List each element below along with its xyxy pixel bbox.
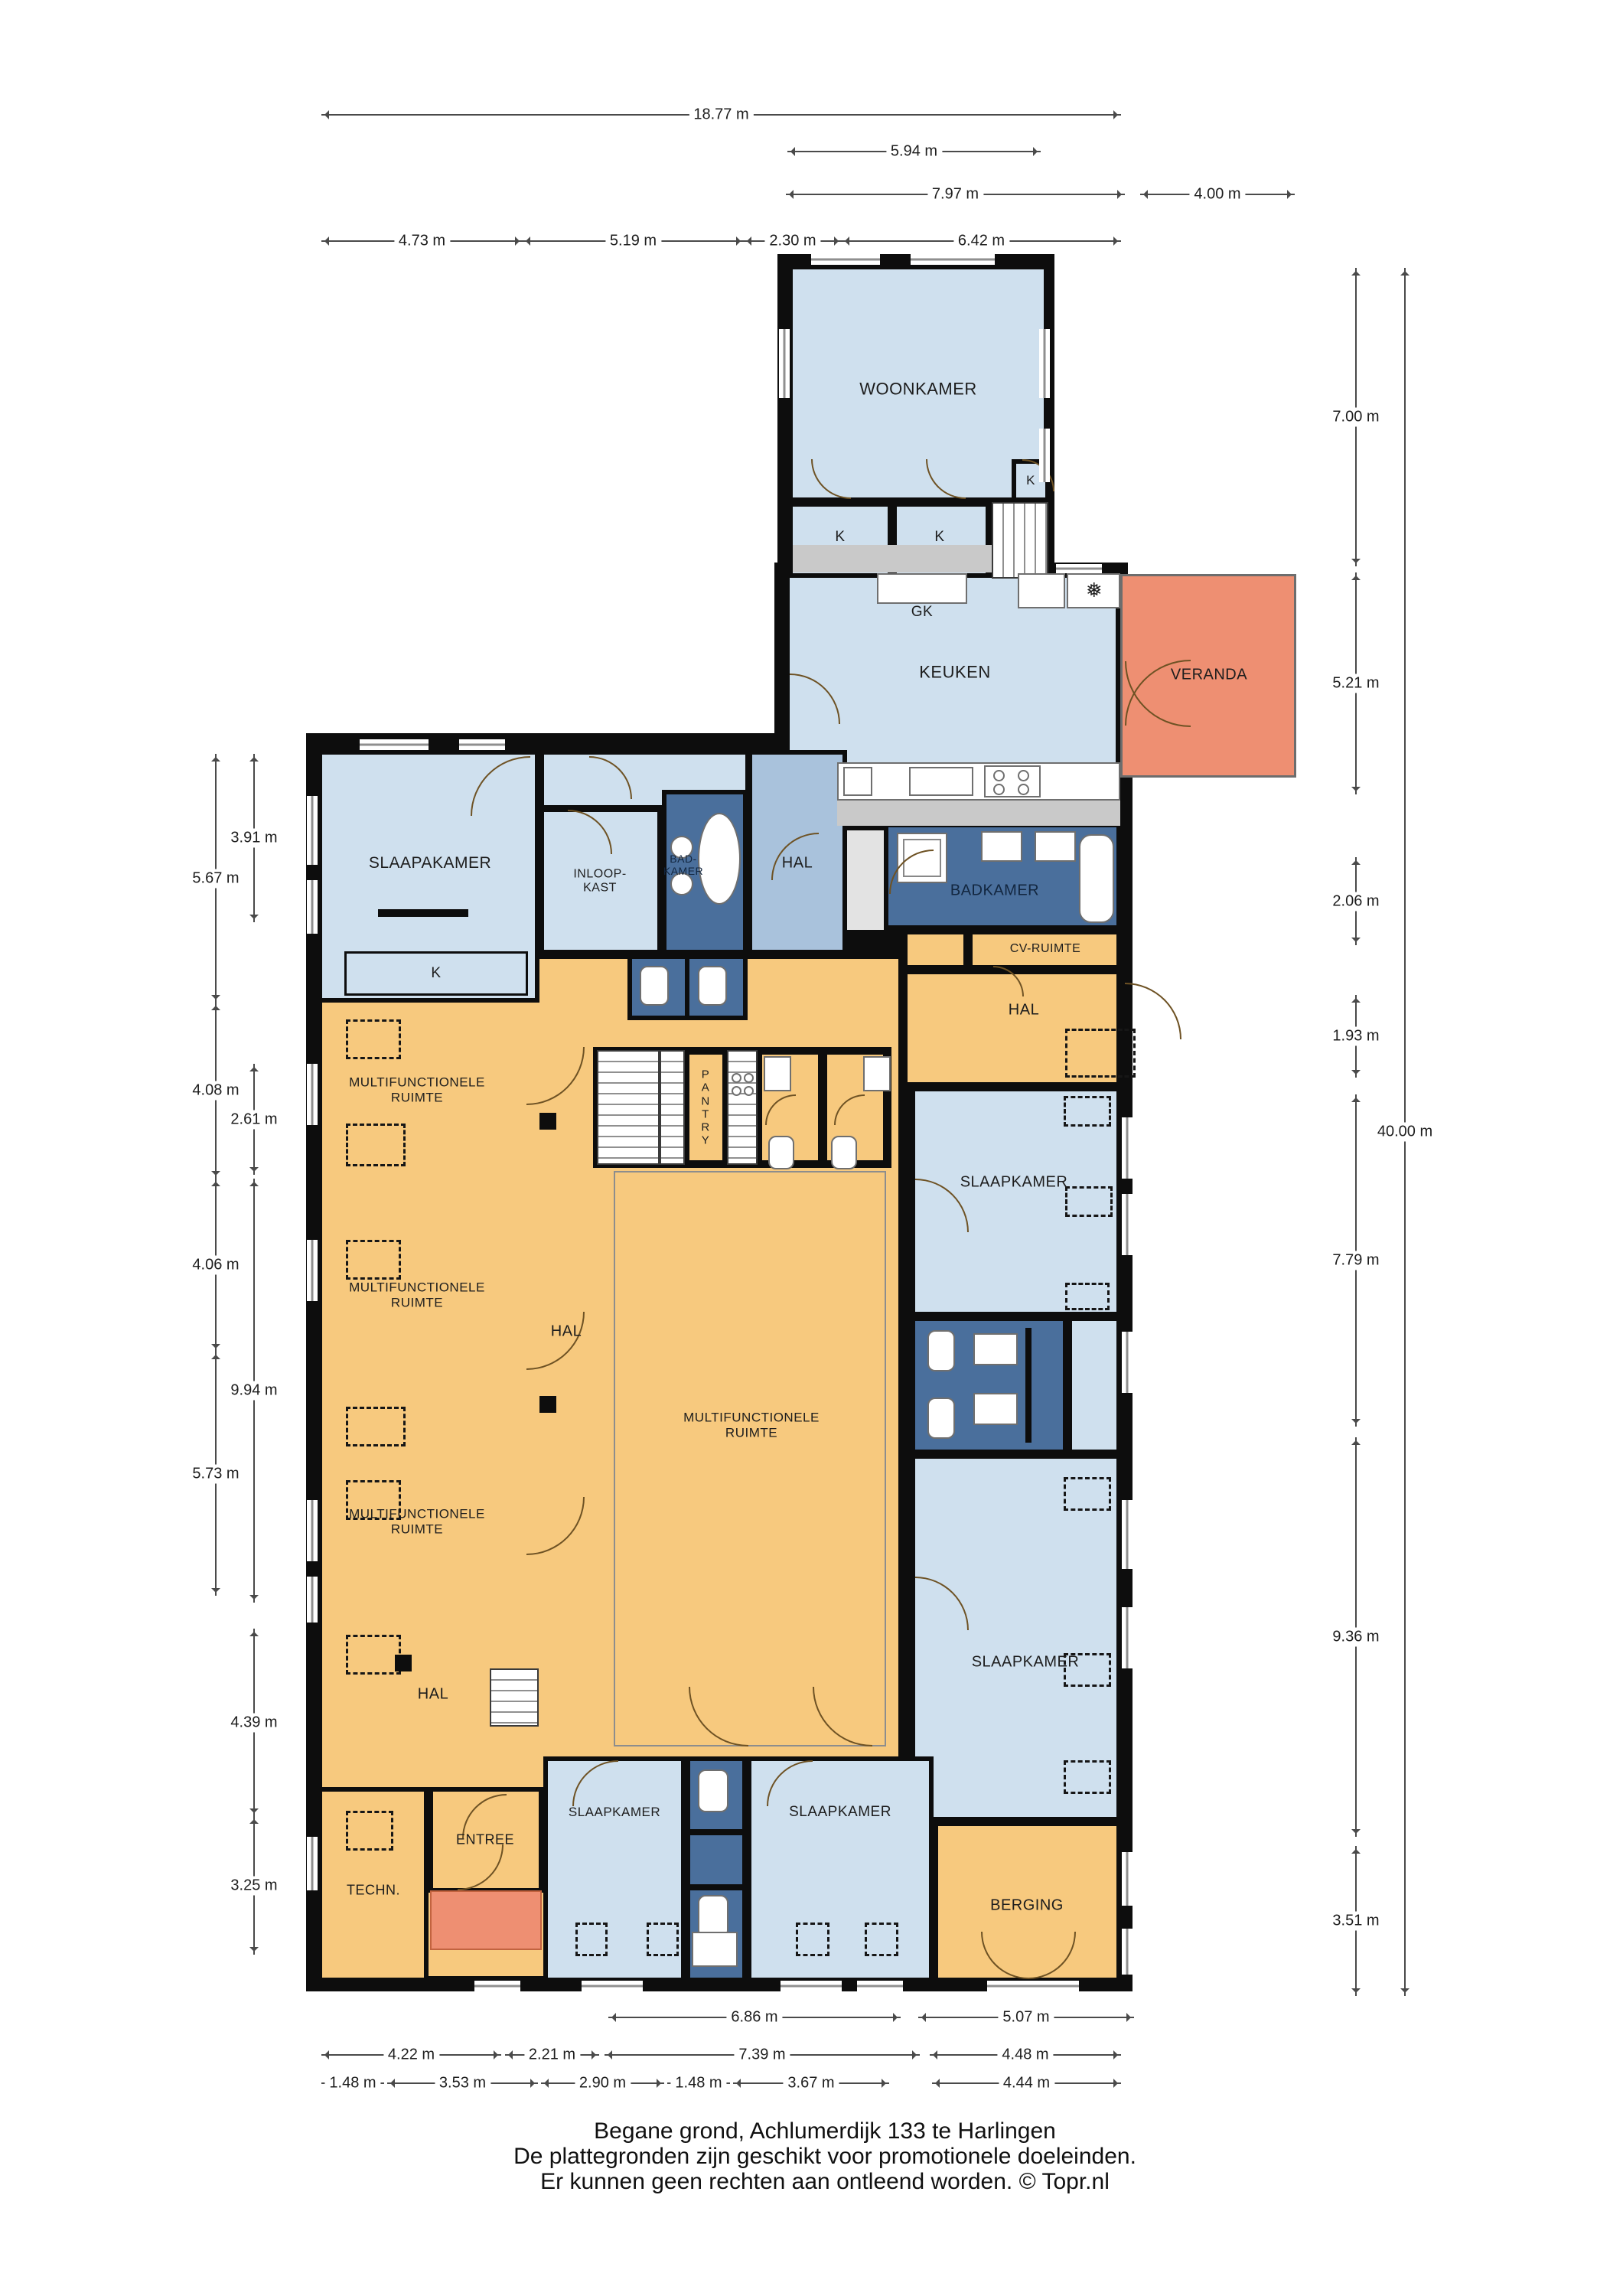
box-multi2-a (346, 1240, 401, 1280)
label-woonkamer: WOONKAMER (859, 379, 977, 398)
win-main-top-1 (360, 739, 429, 750)
bed-ro-1 (1064, 1096, 1111, 1127)
dim-bottom-1-48b-label: 1.48 m (670, 2074, 726, 2093)
label-multi-1: MULTIFUNCTIONELE RUIMTE (349, 1075, 485, 1104)
kitchen-sink (909, 767, 973, 796)
stairs-bottom (490, 1668, 539, 1727)
sink-wc1 (764, 1056, 791, 1091)
wc-col-partition-2 (687, 1884, 745, 1890)
dim-bottom-3-67-label: 3.67 m (783, 2074, 839, 2093)
dim-right-7-79: 7.79 m (1345, 1094, 1367, 1427)
wc-col-partition-1 (687, 1829, 745, 1835)
dim-right-40-00-label: 40.00 m (1373, 1123, 1437, 1142)
label-hal-links: HAL (551, 1323, 582, 1341)
dim-top-18-77: 18.77 m (321, 104, 1121, 126)
win-bottom-1 (474, 1981, 520, 1991)
win-wk-top-1 (811, 254, 880, 265)
dim-left-3-25: 3.25 m (243, 1816, 265, 1955)
dim-right-7-79-label: 7.79 m (1328, 1251, 1383, 1270)
win-berging-e-2 (1122, 1929, 1133, 1975)
footer-title: Begane grond, Achlumerdijk 133 te Harlin… (513, 2118, 1136, 2144)
dim-left-4-39: 4.39 m (243, 1629, 265, 1816)
dim-right-1-93-label: 1.93 m (1328, 1027, 1383, 1046)
label-slaapkamer-rb: SLAAPKAMER (972, 1654, 1080, 1671)
floorplan-footer: Begane grond, Achlumerdijk 133 te Harlin… (513, 2118, 1136, 2194)
dim-bottom-2-21: 2.21 m (505, 2044, 599, 2066)
dim-left-4-08: 4.08 m (205, 1003, 227, 1179)
win-main-e-4 (1122, 1500, 1133, 1569)
dim-left-9-94: 9.94 m (243, 1179, 265, 1603)
toilet-col-1 (698, 1769, 728, 1812)
dim-left-5-73-label: 5.73 m (187, 1464, 243, 1483)
win-tower-left (779, 329, 790, 398)
label-badkamer-groot: BADKAMER (950, 882, 1039, 900)
bath-partition (1025, 1328, 1031, 1443)
dim-top-7-97: 7.97 m (786, 184, 1125, 205)
win-main-e-1 (1122, 1117, 1133, 1179)
kitchen-appliance (843, 767, 872, 796)
sink-wc2 (863, 1056, 891, 1091)
strip-sk-connector (1067, 1316, 1121, 1454)
dim-bottom-5-07: 5.07 m (918, 2007, 1134, 2028)
bed-ro-2 (1065, 1186, 1113, 1217)
label-berging: BERGING (990, 1897, 1064, 1915)
toilet-wcrow-1 (640, 966, 669, 1006)
pillar-hal-1 (539, 1113, 556, 1130)
stove-burner-1 (993, 770, 1005, 781)
dim-top-5-94: 5.94 m (787, 141, 1041, 162)
pantry-burner-4 (744, 1086, 754, 1096)
stove-plate (984, 765, 1041, 797)
dim-top-7-97-label: 7.97 m (927, 185, 983, 204)
fridge-box-a (1018, 573, 1065, 608)
label-k-small: K (1026, 473, 1035, 488)
pantry-cabinet-col (660, 1050, 685, 1165)
toilet-wc1 (768, 1136, 794, 1169)
bed-headboard (378, 909, 468, 917)
win-bottom-4 (857, 1981, 903, 1991)
box-b1-b (647, 1923, 679, 1956)
box-b1-a (575, 1923, 608, 1956)
win-main-w-4 (307, 1240, 318, 1301)
win-tower-right-2 (1039, 429, 1050, 482)
pantry-burner-3 (732, 1086, 741, 1096)
dim-left-5-67: 5.67 m (205, 754, 227, 1003)
wc-row-divider (685, 957, 689, 1018)
pillar-hal-2 (539, 1396, 556, 1413)
dim-right-9-36: 9.36 m (1345, 1437, 1367, 1837)
win-keuken-top (1056, 564, 1102, 573)
bed-rb-1 (1064, 1477, 1111, 1511)
dim-bottom-5-07-label: 5.07 m (998, 2008, 1054, 2027)
sink-mid-1 (973, 1333, 1018, 1365)
pantry-counter-col (727, 1050, 758, 1165)
dim-left-5-73: 5.73 m (205, 1352, 227, 1596)
win-main-w-5 (307, 1500, 318, 1561)
dim-bottom-2-90: 2.90 m (541, 2073, 664, 2094)
kitchen-counter (837, 762, 1120, 801)
win-berging-e-1 (1122, 1852, 1133, 1906)
dim-top-2-30: 2.30 m (744, 230, 842, 252)
bathtub-groot (1079, 834, 1114, 923)
win-main-e-3 (1122, 1332, 1133, 1393)
dim-left-4-06-label: 4.06 m (187, 1256, 243, 1275)
toilet-mid-1 (927, 1330, 955, 1371)
dim-top-4-00: 4.00 m (1140, 184, 1295, 205)
dim-bottom-4-22: 4.22 m (321, 2044, 501, 2066)
dim-top-4-73-label: 4.73 m (394, 232, 450, 251)
kitchen-counter-back (837, 801, 1120, 826)
label-gk: GK (911, 604, 933, 621)
win-main-w-3 (307, 1064, 318, 1125)
bed-ro-3 (1065, 1283, 1110, 1310)
label-k-b: K (934, 529, 944, 546)
dim-bottom-4-48-label: 4.48 m (997, 2046, 1053, 2065)
dim-bottom-1-48a: 1.48 m (321, 2073, 384, 2094)
dim-bottom-4-44-label: 4.44 m (999, 2074, 1054, 2093)
win-berging-door (987, 1981, 1079, 1991)
sink-mid-2 (973, 1393, 1018, 1425)
toilet-wc2 (831, 1136, 857, 1169)
dim-right-5-21: 5.21 m (1345, 572, 1367, 794)
bed-rb-3 (1064, 1760, 1111, 1794)
label-hal-rechts: HAL (1009, 1002, 1039, 1019)
tower-landing (793, 545, 1019, 572)
dim-left-4-39-label: 4.39 m (226, 1713, 282, 1732)
dim-top-5-94-label: 5.94 m (886, 142, 942, 161)
dim-right-7-00: 7.00 m (1345, 268, 1367, 566)
label-k-a: K (835, 529, 845, 546)
gk-cabinet (877, 573, 967, 604)
dim-bottom-7-39-label: 7.39 m (734, 2046, 790, 2065)
mat-entree (430, 1890, 542, 1950)
dim-left-4-06: 4.06 m (205, 1179, 227, 1352)
win-main-e-2 (1122, 1194, 1133, 1255)
dim-top-4-73: 4.73 m (321, 230, 523, 252)
dim-top-5-19: 5.19 m (523, 230, 744, 252)
label-pantry: P A N T R Y (701, 1068, 709, 1147)
sink-col (692, 1932, 738, 1967)
stove-burner-4 (1018, 784, 1029, 795)
dim-left-3-91-label: 3.91 m (226, 829, 282, 848)
label-cv-ruimte: CV-RUIMTE (1010, 942, 1081, 956)
box-multi1-b (346, 1124, 406, 1166)
central-room-outline (614, 1171, 886, 1746)
label-slaapakamer: SLAAPAKAMER (369, 854, 491, 872)
toilet-mid-2 (927, 1397, 955, 1439)
dim-bottom-2-21-label: 2.21 m (524, 2046, 580, 2065)
dim-bottom-1-48b: 1.48 m (667, 2073, 730, 2094)
label-veranda: VERANDA (1171, 667, 1247, 684)
dim-left-2-61-label: 2.61 m (226, 1110, 282, 1129)
dim-right-3-51: 3.51 m (1345, 1846, 1367, 1996)
dim-bottom-6-86: 6.86 m (608, 2007, 901, 2028)
pantry-burner-2 (744, 1073, 754, 1083)
dim-right-2-06-label: 2.06 m (1328, 892, 1383, 911)
box-b2-b (865, 1923, 898, 1956)
label-multi-2: MULTIFUNCTIONELE RUIMTE (349, 1280, 485, 1309)
dim-right-5-21-label: 5.21 m (1328, 674, 1383, 693)
stove-burner-3 (993, 784, 1005, 795)
label-entree: ENTREE (456, 1832, 514, 1848)
win-bottom-2 (582, 1981, 643, 1991)
dim-top-5-19-label: 5.19 m (605, 232, 661, 251)
bathtub-klein (698, 813, 741, 905)
label-badkamer-klein: BAD- KAMER (663, 853, 703, 877)
label-k-strip: K (431, 965, 441, 982)
label-techn: TECHN. (347, 1883, 400, 1899)
dim-top-6-42-label: 6.42 m (953, 232, 1009, 251)
floorplan-begane-grond: Begane grond, Achlumerdijk 133 te Harlin… (0, 0, 1623, 2296)
win-tower-right-1 (1039, 329, 1050, 398)
stairs-tower (992, 502, 1048, 579)
dim-bottom-3-67: 3.67 m (733, 2073, 889, 2094)
dim-top-2-30-label: 2.30 m (764, 232, 820, 251)
dim-top-6-42: 6.42 m (842, 230, 1121, 252)
dim-right-9-36-label: 9.36 m (1328, 1628, 1383, 1647)
dim-left-2-61: 2.61 m (243, 1064, 265, 1175)
label-hal-midden: HAL (782, 855, 813, 872)
stairs-center (597, 1050, 660, 1165)
dim-right-7-00-label: 7.00 m (1328, 408, 1383, 427)
stove-burner-2 (1018, 770, 1029, 781)
dim-left-3-25-label: 3.25 m (226, 1876, 282, 1895)
dim-right-2-06: 2.06 m (1345, 857, 1367, 945)
pantry-burner-1 (732, 1073, 741, 1083)
dim-right-1-93: 1.93 m (1345, 995, 1367, 1078)
label-fridge-icon: ❅ (1086, 579, 1103, 602)
win-wk-top-2 (911, 254, 995, 265)
dim-bottom-4-22-label: 4.22 m (383, 2046, 439, 2065)
dim-bottom-3-53: 3.53 m (387, 2073, 538, 2094)
dim-bottom-4-44: 4.44 m (932, 2073, 1121, 2094)
dim-bottom-1-48a-label: 1.48 m (324, 2074, 380, 2093)
sink-bk-2 (1035, 831, 1076, 862)
win-main-w-1 (307, 796, 318, 865)
dim-left-4-08-label: 4.08 m (187, 1081, 243, 1101)
dim-bottom-7-39: 7.39 m (605, 2044, 920, 2066)
dim-bottom-6-86-label: 6.86 m (726, 2008, 782, 2027)
pillar-hal-3 (395, 1655, 412, 1671)
win-main-w-6 (307, 1577, 318, 1623)
footer-disclaimer-2: Er kunnen geen rechten aan ontleend word… (513, 2169, 1136, 2194)
win-main-top-2 (459, 739, 505, 750)
dim-top-4-00-label: 4.00 m (1189, 185, 1245, 204)
dim-right-40-00: 40.00 m (1394, 268, 1416, 1996)
dim-left-9-94-label: 9.94 m (226, 1381, 282, 1401)
label-multi-center: MULTIFUNCTIONELE RUIMTE (683, 1410, 820, 1440)
door-buiten-oost (1125, 983, 1181, 1039)
label-hal-onder: HAL (418, 1686, 448, 1704)
label-inloopkast: INLOOP- KAST (573, 868, 626, 896)
label-slaapkamer-b1: SLAAPKAMER (569, 1805, 660, 1820)
win-bottom-3 (781, 1981, 842, 1991)
sink-bk-1 (981, 831, 1022, 862)
dim-left-5-67-label: 5.67 m (187, 869, 243, 888)
dim-right-3-51-label: 3.51 m (1328, 1912, 1383, 1931)
box-b2-a (796, 1923, 829, 1956)
dim-top-18-77-label: 18.77 m (689, 106, 753, 125)
win-main-w-2 (307, 880, 318, 934)
label-slaapkamer-ro: SLAAPKAMER (960, 1174, 1068, 1192)
dim-bottom-3-53-label: 3.53 m (435, 2074, 490, 2093)
gray-stairs-mid (847, 830, 884, 930)
win-main-e-5 (1122, 1607, 1133, 1668)
label-multi-3: MULTIFUNCTIONELE RUIMTE (349, 1506, 485, 1536)
toilet-wcrow-2 (698, 966, 727, 1006)
box-hal-links (346, 1811, 393, 1851)
label-slaapkamer-b2: SLAAPKAMER (789, 1804, 891, 1821)
footer-disclaimer-1: De plattegronden zijn geschikt voor prom… (513, 2144, 1136, 2169)
box-multi3-b (346, 1635, 401, 1675)
room-pre-cv (903, 930, 968, 970)
dim-bottom-4-48: 4.48 m (930, 2044, 1121, 2066)
dim-bottom-2-90-label: 2.90 m (575, 2074, 631, 2093)
box-multi2-b (346, 1407, 406, 1446)
win-main-w-7 (307, 1837, 318, 1890)
label-keuken: KEUKEN (919, 662, 990, 681)
box-multi1-a (346, 1019, 401, 1059)
dim-left-3-91: 3.91 m (243, 754, 265, 922)
